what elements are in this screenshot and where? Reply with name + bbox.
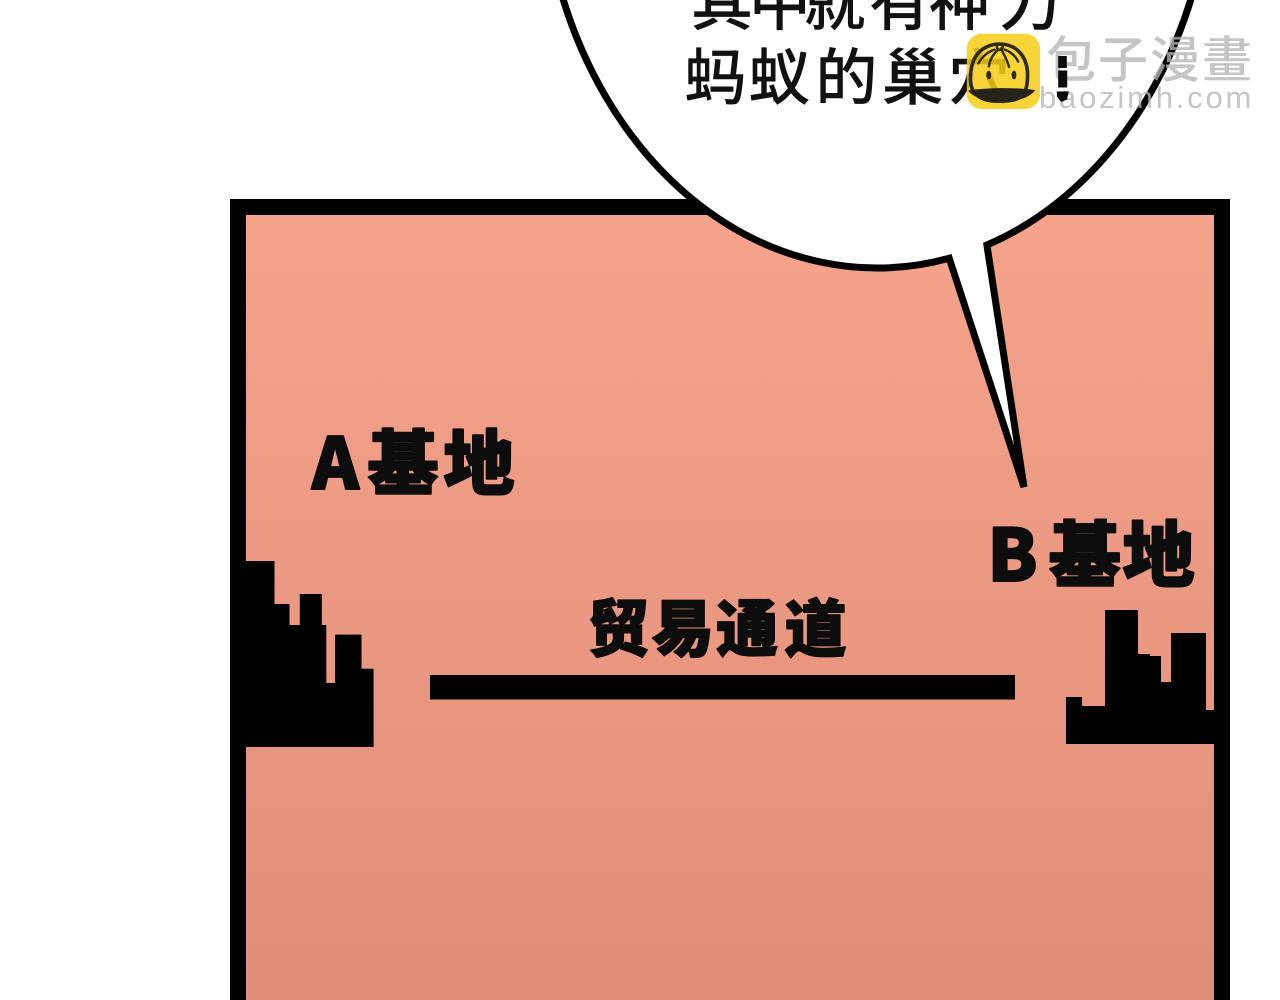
svg-text:baozimh.com: baozimh.com: [1039, 80, 1254, 115]
